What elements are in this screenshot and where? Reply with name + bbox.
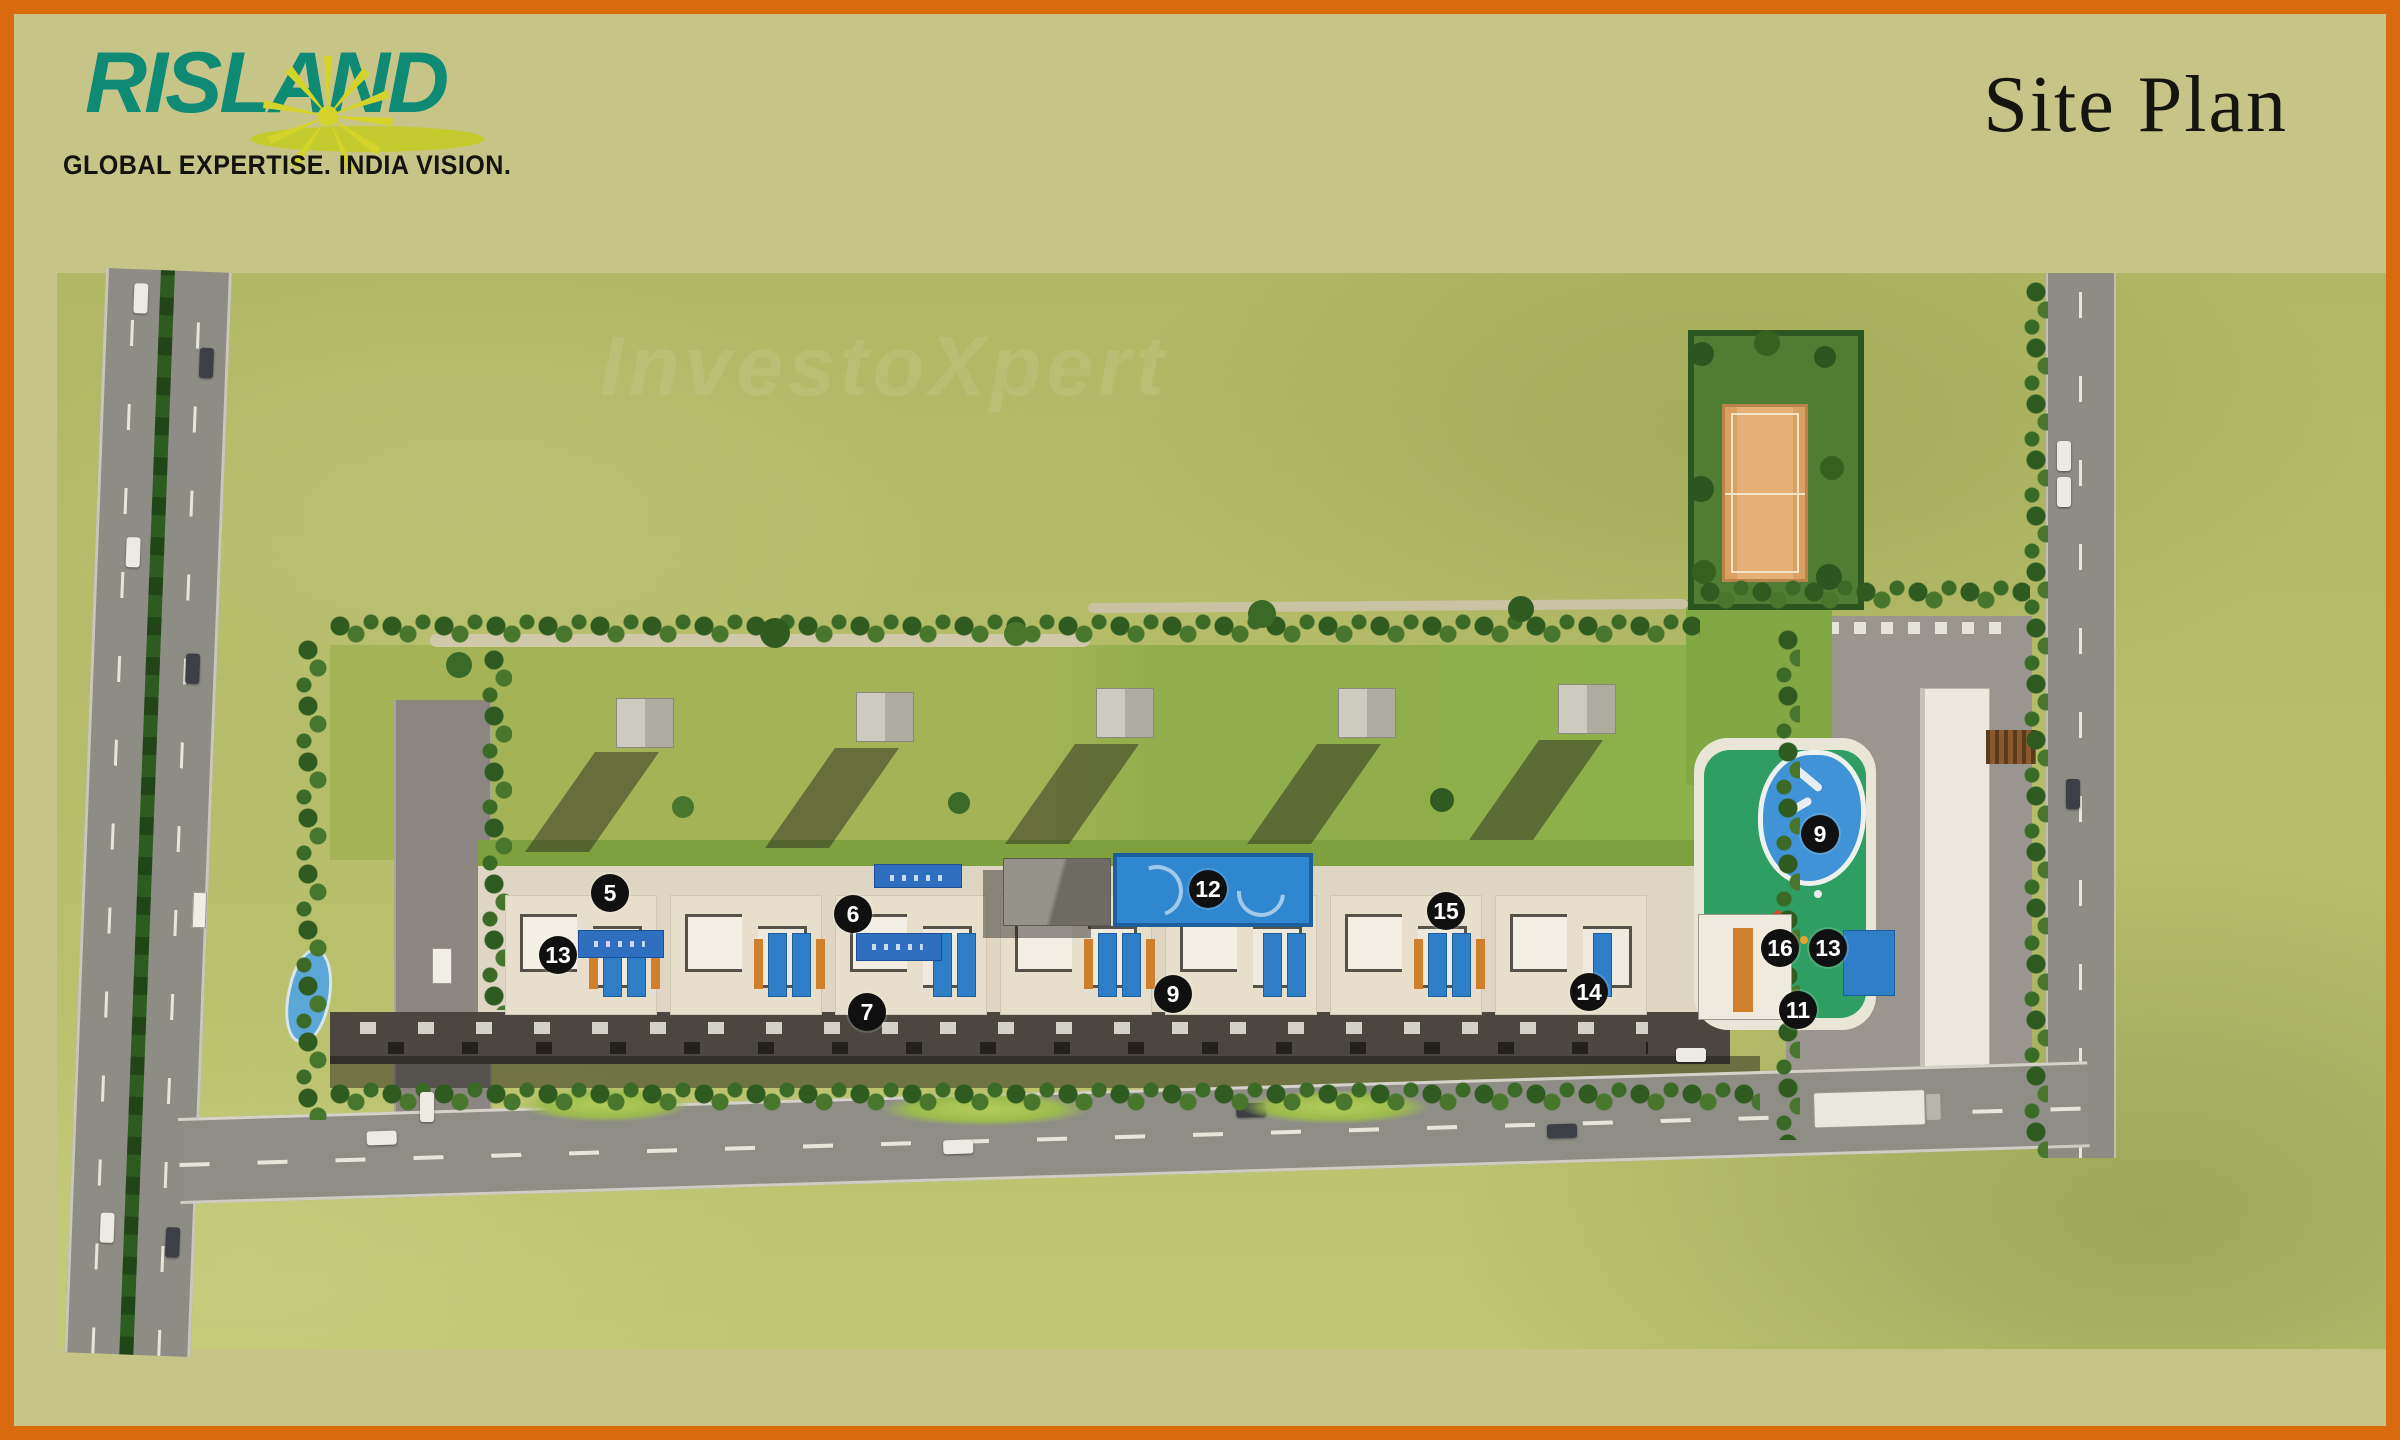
tree-column-right-road [2024,282,2048,1158]
lap-pool [1098,933,1117,997]
tree [948,792,970,814]
main-swimming-pool [1113,853,1313,927]
tower-top [1558,684,1616,734]
right-road [2046,273,2116,1158]
lap-pool [1287,933,1306,997]
tower-top [616,698,674,748]
lap-pool [1122,933,1141,997]
clubhouse-roof [1003,858,1111,926]
car [943,1139,973,1154]
guard-cabin [432,948,452,984]
lap-pool [1593,933,1612,997]
page-title: Site Plan [1983,60,2288,151]
pool-deck [816,939,825,989]
lap-pool [792,933,811,997]
car [165,1227,180,1258]
lap-pool [1843,930,1895,996]
truck [1813,1089,1926,1128]
lap-pool [1263,933,1282,997]
tower-top [856,692,914,742]
car [1676,1048,1706,1062]
tree-row-top-right [1700,578,2030,610]
lap-pool [957,933,976,997]
play-equipment [1800,936,1808,944]
tower-top [1096,688,1154,738]
pool-signboard [578,930,664,958]
logo-tagline: GLOBAL EXPERTISE. INDIA VISION. [63,150,511,181]
car [2057,477,2071,507]
play-equipment [1814,890,1822,898]
car [2057,441,2071,471]
tree-column-left [296,640,386,1120]
amenity-signboard [874,864,962,888]
lane-marking [2079,273,2082,1158]
court-net-line [1725,493,1805,495]
tower-top [1338,688,1396,738]
watermark: InvestoXpert [600,318,1169,415]
car [366,1131,396,1146]
tennis-court-enclosure [1688,330,1864,610]
tree [760,618,790,648]
pool-signboard [856,933,942,961]
pool-deck [754,939,763,989]
tennis-court [1722,404,1808,582]
lap-pool [1428,933,1447,997]
tree [1508,596,1534,622]
car [199,348,214,379]
pool-wave [1227,859,1295,927]
pool-deck [1733,928,1753,1012]
tree [672,796,694,818]
tree [1820,456,1844,480]
pool-deck [1476,939,1485,989]
pool-deck [1146,939,1155,989]
parked-cars-row [360,1022,1648,1034]
tree [446,652,472,678]
lap-pool [1452,933,1471,997]
tree [1688,476,1714,502]
tree [1754,330,1780,356]
pool-wave [1122,856,1191,925]
pool-deck [1084,939,1093,989]
tree [1430,788,1454,812]
parked-cars-row [388,1042,1648,1054]
car [133,283,148,314]
tree [1248,600,1276,628]
tree [1004,622,1028,646]
pool-deck [1414,939,1423,989]
bus-stop [192,892,207,929]
car [185,653,200,684]
car [100,1212,115,1243]
tree [1690,342,1714,366]
building-cluster-7 [1495,895,1647,1015]
tree-row-bottom [330,1080,1760,1122]
car [420,1092,434,1122]
car [126,537,141,568]
site-plan-page: RISLAND GLOBAL EXPERTISE. INDIA VISION. … [0,0,2400,1440]
car [1547,1124,1577,1139]
tree-column-parking [1776,630,1800,1140]
car [2066,779,2080,809]
lap-pool [768,933,787,997]
tree [1814,346,1836,368]
